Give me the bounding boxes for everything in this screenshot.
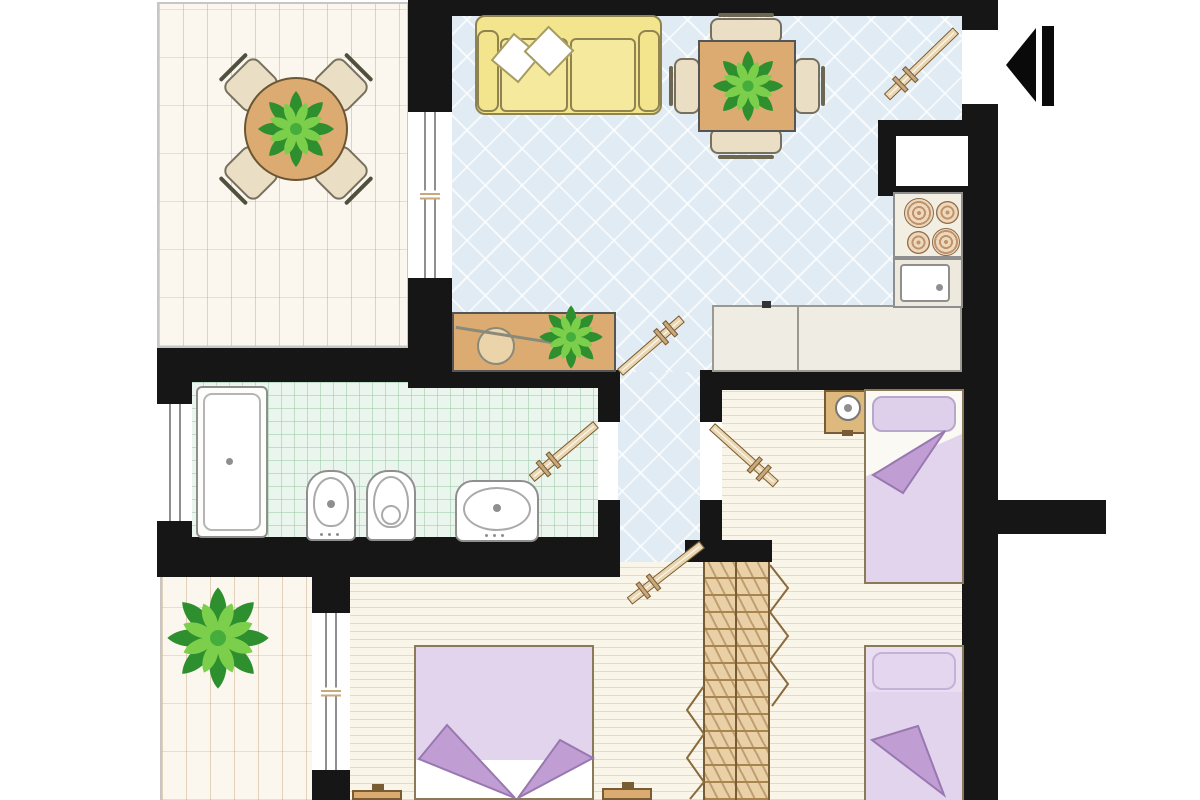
window-tick: [420, 191, 440, 200]
counter-divider: [797, 307, 799, 370]
wall-hall-left-lower: [598, 500, 620, 540]
lamp-center: [844, 404, 852, 412]
stairs-zigzag-left: [682, 682, 708, 800]
wall-top: [408, 0, 998, 16]
tap-dot: [328, 533, 331, 536]
burner: [904, 198, 934, 228]
nightstand-knob: [842, 430, 853, 436]
kitchen-counter: [712, 305, 962, 372]
sofa-seat-right: [570, 38, 636, 112]
kitchen-sink-basin: [900, 264, 950, 302]
stairs-center-line: [735, 562, 737, 800]
tap-dot: [336, 533, 339, 536]
apartment-floor-plan: [0, 0, 1200, 800]
terrace-bedroom-window: [312, 613, 350, 770]
wall-terrace-bottom-upper: [312, 577, 350, 615]
tap-dot: [493, 534, 496, 537]
blanket-fold: [866, 425, 966, 500]
plant-icon: [162, 582, 274, 694]
sofa-armrest-left: [477, 30, 499, 112]
tap-dot: [320, 533, 323, 536]
arrow-bar: [1042, 26, 1054, 106]
wall-terrace-living-lower: [408, 278, 452, 350]
terrace-living-window: [408, 112, 452, 278]
wall-bath-bottom: [157, 537, 620, 577]
door-handle: [892, 76, 909, 93]
stairs-zigzag-right: [768, 560, 794, 710]
wall-bedroom-right-top: [700, 370, 962, 390]
blanket-fold: [414, 718, 596, 800]
kitchen-niche-window: [896, 136, 968, 186]
counter-knob: [762, 301, 771, 308]
window-tick: [321, 687, 341, 696]
wall-hall-right-lower: [700, 500, 722, 540]
window-frame: [169, 404, 181, 521]
toilet-bowl: [381, 505, 401, 525]
bed-pillow: [872, 652, 956, 690]
wall-right-upper: [962, 0, 998, 30]
tap-dot: [501, 534, 504, 537]
wall-right-main: [962, 104, 998, 800]
wall-terrace-living-upper: [408, 16, 452, 112]
plant-icon: [254, 87, 338, 171]
chair: [794, 58, 820, 114]
nightstand-knob: [372, 784, 384, 790]
nightstand-left: [352, 790, 402, 800]
bidet-drain: [327, 500, 335, 508]
door-handle: [746, 456, 762, 473]
door-handle: [902, 66, 919, 83]
bathroom-window: [157, 404, 192, 521]
burner: [936, 201, 959, 224]
wall-terrace-bottom-lower: [312, 768, 350, 800]
plant-icon: [536, 302, 606, 372]
wall-right-extension: [996, 500, 1106, 534]
sofa-armrest-right: [638, 30, 660, 112]
wall-hall-right-upper: [700, 388, 722, 422]
door-handle: [756, 465, 772, 482]
blanket-fold: [866, 720, 966, 800]
basin-drain: [493, 504, 501, 512]
nightstand-right: [602, 788, 652, 800]
wall-living-bottom: [408, 370, 620, 388]
burner: [907, 231, 930, 254]
plant-icon: [709, 47, 787, 125]
room-hallway: [618, 372, 700, 562]
burner: [932, 228, 960, 256]
arrow-triangle: [1006, 28, 1036, 102]
chair: [674, 58, 700, 114]
sink-drain: [936, 284, 943, 291]
wall-hall-left-upper: [598, 385, 620, 422]
wall-bath-left-upper: [157, 382, 192, 406]
tap-dot: [485, 534, 488, 537]
nightstand-knob: [622, 782, 634, 788]
tub-drain: [226, 458, 233, 465]
